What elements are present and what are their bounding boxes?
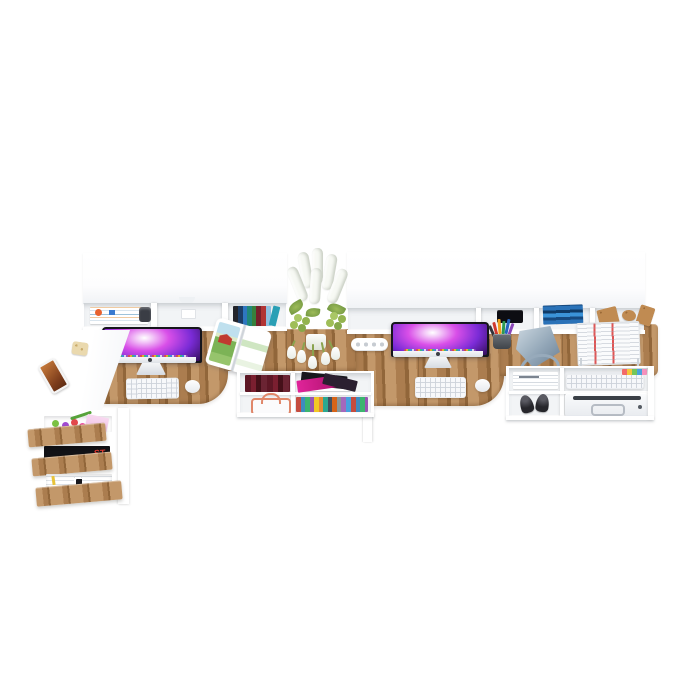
blue-book-stack xyxy=(543,304,584,324)
white-tulip xyxy=(287,346,296,359)
side-panel xyxy=(648,366,654,420)
pen-cup xyxy=(491,316,515,354)
left-wall-cabinet xyxy=(83,253,287,331)
printer-paper-slot xyxy=(573,396,641,400)
magazine-accent xyxy=(109,310,115,315)
right-shelf-unit xyxy=(506,366,654,420)
right-mouse xyxy=(475,379,490,392)
wire-pen-holder xyxy=(493,334,511,349)
drawer-front xyxy=(27,423,106,448)
white-lupine-spike xyxy=(309,268,322,305)
right-keyboard xyxy=(415,377,466,398)
printer-handle xyxy=(591,404,625,416)
green-buds xyxy=(294,314,302,322)
flower-arrangement xyxy=(280,250,356,378)
shelf-divider xyxy=(151,303,157,327)
printer xyxy=(565,393,649,417)
magazine-logo xyxy=(95,309,102,316)
sticky-tabs xyxy=(622,369,647,375)
media-case-row xyxy=(296,397,368,412)
printer-button xyxy=(638,405,642,409)
white-tulip xyxy=(331,347,340,360)
spare-keyboard xyxy=(566,374,644,389)
left-keyboard xyxy=(126,378,179,400)
apple-logo-dot xyxy=(436,352,440,356)
white-tulip xyxy=(308,356,317,369)
biscuit xyxy=(71,341,89,356)
green-leaf xyxy=(306,307,321,317)
dark-knit-item xyxy=(139,307,151,322)
desk-leg xyxy=(363,414,372,442)
power-strip xyxy=(351,338,388,351)
document-stack xyxy=(513,372,558,389)
white-tulip xyxy=(321,352,330,365)
right-imac-chin xyxy=(393,351,483,357)
yellow-pencil xyxy=(51,476,55,485)
green-buds xyxy=(330,312,338,320)
shelf-bottom-edge xyxy=(237,413,374,417)
small-white-box xyxy=(181,309,196,319)
drawer-unit: ST xyxy=(30,408,132,510)
shelf-bottom-edge xyxy=(506,416,654,420)
scene-description: 3D product render, viewed from a high fr… xyxy=(0,0,1,1)
middle-shelf-unit xyxy=(237,371,374,417)
left-mouse xyxy=(185,380,200,393)
apple-logo-dot xyxy=(148,358,152,362)
maroon-book-row xyxy=(245,375,290,392)
furniture-product-image: 3D product render, viewed from a high fr… xyxy=(0,0,700,700)
right-cabinet-door xyxy=(347,252,645,309)
red-barn xyxy=(218,332,233,345)
white-tulip xyxy=(297,350,306,363)
shelf-board xyxy=(240,392,371,395)
